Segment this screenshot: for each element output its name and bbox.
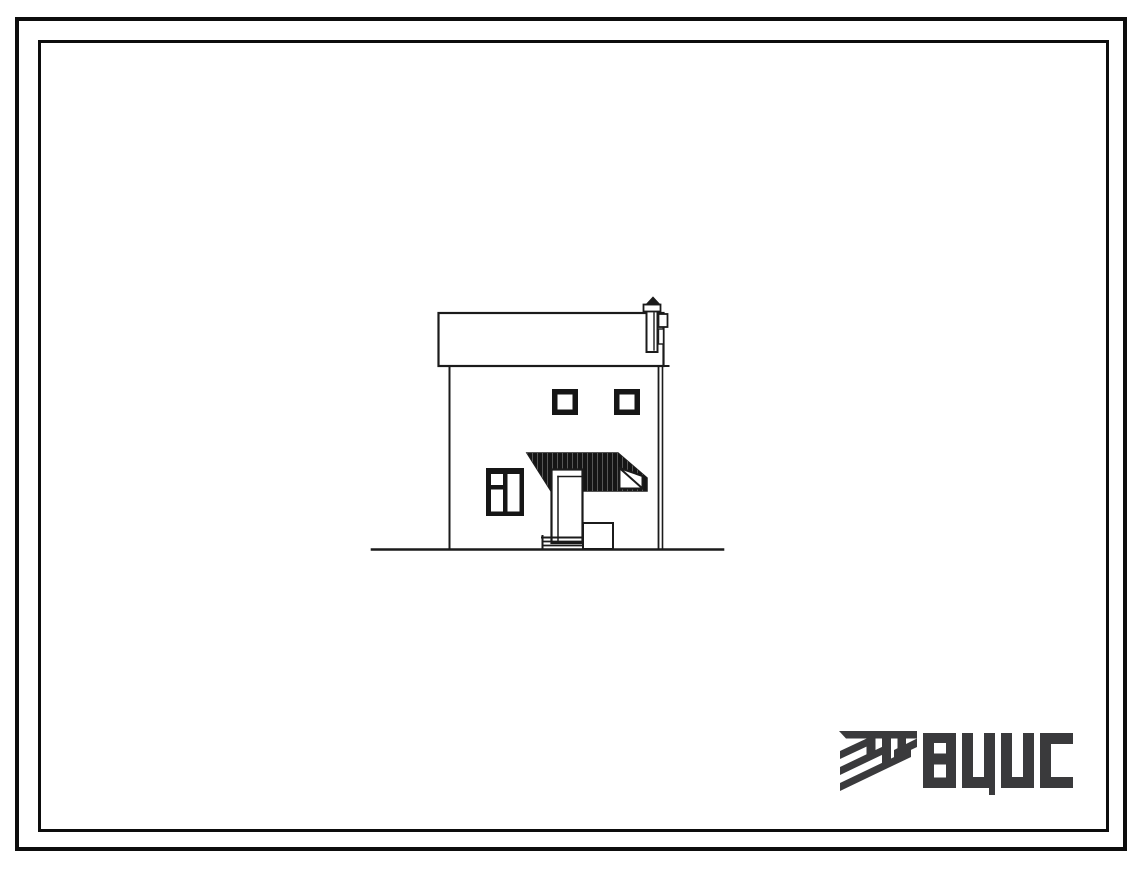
side-block bbox=[583, 523, 613, 549]
chimney-vent bbox=[644, 298, 668, 353]
upper-window-left bbox=[552, 389, 578, 415]
diagonal-hatched-monogram-icon bbox=[838, 729, 918, 797]
letter-i bbox=[1001, 733, 1034, 788]
scanned-sheet: house-side-elevation bbox=[0, 0, 1139, 869]
chimney-cap-icon bbox=[647, 298, 660, 305]
upper-window-right bbox=[614, 389, 640, 415]
house-elevation-drawing: house-side-elevation bbox=[360, 288, 732, 560]
letter-v bbox=[923, 733, 956, 788]
letter-s bbox=[1040, 733, 1073, 788]
vcis-watermark-logo: ВЦИС bbox=[838, 727, 1078, 799]
logo-text-value: ВЦИС bbox=[838, 727, 839, 728]
lower-window bbox=[486, 468, 524, 516]
letter-ts bbox=[962, 733, 995, 795]
parapet-roof-band bbox=[439, 313, 664, 366]
logo-lettering bbox=[921, 727, 1078, 799]
entrance-door bbox=[552, 470, 583, 544]
